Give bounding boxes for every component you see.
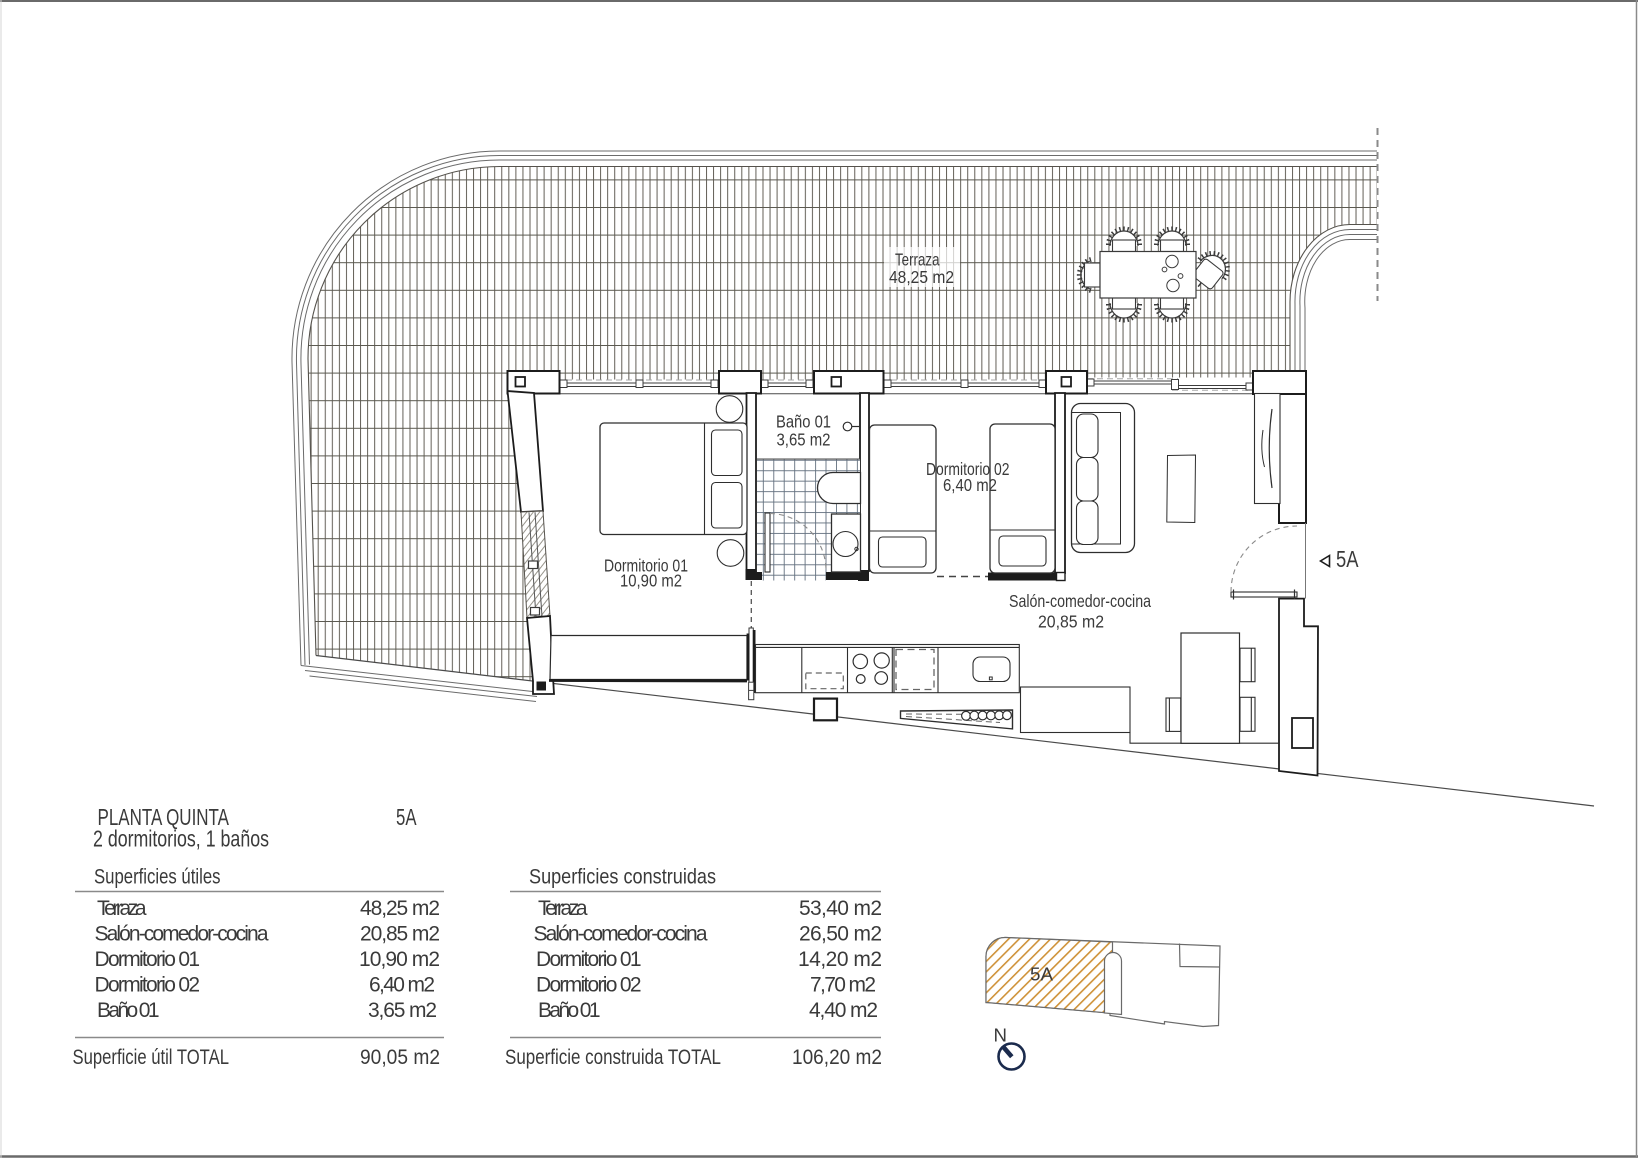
svg-text:20,85 m2: 20,85 m2 — [1038, 612, 1104, 632]
svg-text:7,70 m2: 7,70 m2 — [810, 974, 876, 997]
svg-text:Salón-comedor-cocina: Salón-comedor-cocina — [534, 923, 708, 946]
svg-text:3,65 m2: 3,65 m2 — [368, 999, 437, 1022]
svg-text:14,20 m2: 14,20 m2 — [798, 948, 882, 971]
svg-text:Superficies construidas: Superficies construidas — [529, 866, 716, 889]
svg-text:Superficies útiles: Superficies útiles — [94, 866, 221, 889]
svg-text:5A: 5A — [1336, 546, 1359, 572]
svg-text:48,25 m2: 48,25 m2 — [889, 267, 954, 287]
svg-text:48,25 m2: 48,25 m2 — [360, 897, 440, 920]
svg-text:3,65 m2: 3,65 m2 — [777, 430, 831, 450]
svg-text:26,50 m2: 26,50 m2 — [799, 923, 882, 946]
svg-text:Terraza: Terraza — [538, 897, 588, 920]
svg-text:6,40 m2: 6,40 m2 — [943, 475, 997, 495]
svg-text:90,05 m2: 90,05 m2 — [360, 1046, 440, 1069]
svg-text:Terraza: Terraza — [97, 897, 147, 920]
svg-text:2 dormitorios, 1 baños: 2 dormitorios, 1 baños — [93, 826, 269, 852]
svg-text:Dormitorio 02: Dormitorio 02 — [536, 974, 642, 997]
svg-text:Baño 01: Baño 01 — [776, 412, 831, 432]
svg-text:Superficie construida TOTAL: Superficie construida TOTAL — [505, 1046, 721, 1069]
svg-text:Dormitorio 01: Dormitorio 01 — [95, 948, 201, 971]
svg-text:53,40 m2: 53,40 m2 — [799, 897, 882, 920]
svg-text:20,85 m2: 20,85 m2 — [360, 923, 440, 946]
svg-text:5A: 5A — [1030, 964, 1054, 985]
svg-text:6,40 m2: 6,40 m2 — [369, 974, 435, 997]
svg-text:10,90 m2: 10,90 m2 — [620, 571, 682, 591]
svg-text:4,40 m2: 4,40 m2 — [809, 999, 878, 1022]
svg-text:10,90 m2: 10,90 m2 — [359, 948, 440, 971]
svg-text:Baño 01: Baño 01 — [97, 999, 160, 1022]
svg-text:5A: 5A — [396, 804, 417, 830]
svg-text:Dormitorio 02: Dormitorio 02 — [95, 974, 201, 997]
svg-text:106,20 m2: 106,20 m2 — [792, 1046, 882, 1069]
svg-text:Dormitorio 01: Dormitorio 01 — [536, 948, 642, 971]
svg-text:Superficie útil TOTAL: Superficie útil TOTAL — [73, 1046, 230, 1069]
svg-text:Salón-comedor-cocina: Salón-comedor-cocina — [1009, 591, 1151, 611]
svg-text:Salón-comedor-cocina: Salón-comedor-cocina — [95, 923, 269, 946]
svg-text:Baño 01: Baño 01 — [538, 999, 601, 1022]
svg-text:N: N — [994, 1025, 1008, 1046]
